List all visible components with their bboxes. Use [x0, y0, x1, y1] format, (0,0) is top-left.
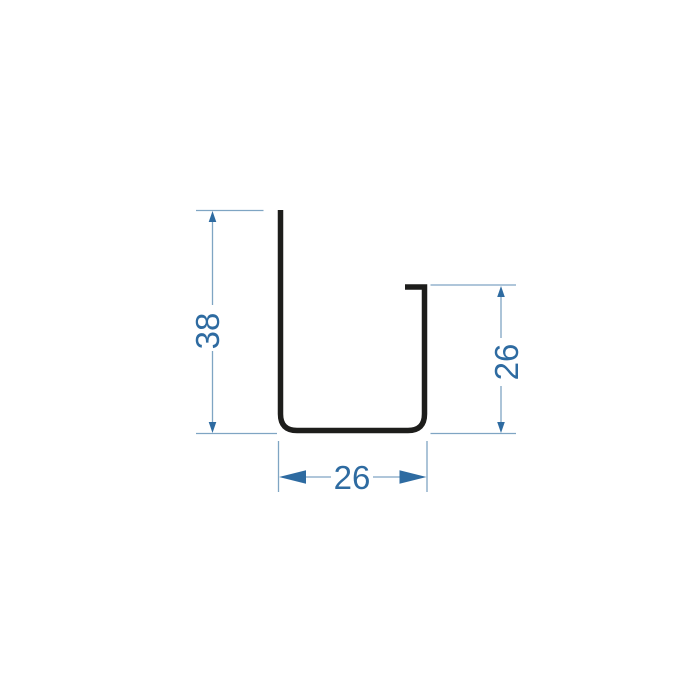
- technical-drawing: 38 26 26: [0, 0, 700, 700]
- arrow-left-icon: [279, 470, 306, 484]
- profile-outline: [281, 210, 425, 431]
- dimension-label-lip: 26: [488, 344, 525, 381]
- arrow-right-icon: [400, 470, 427, 484]
- arrow-down-icon: [209, 422, 217, 433]
- arrow-up-icon: [497, 286, 505, 297]
- dimension-label-width: 26: [334, 459, 371, 496]
- dimension-label-height: 38: [189, 313, 226, 350]
- arrow-up-icon: [209, 211, 217, 222]
- arrow-down-icon: [497, 422, 505, 433]
- drawing-canvas: 38 26 26: [0, 0, 700, 700]
